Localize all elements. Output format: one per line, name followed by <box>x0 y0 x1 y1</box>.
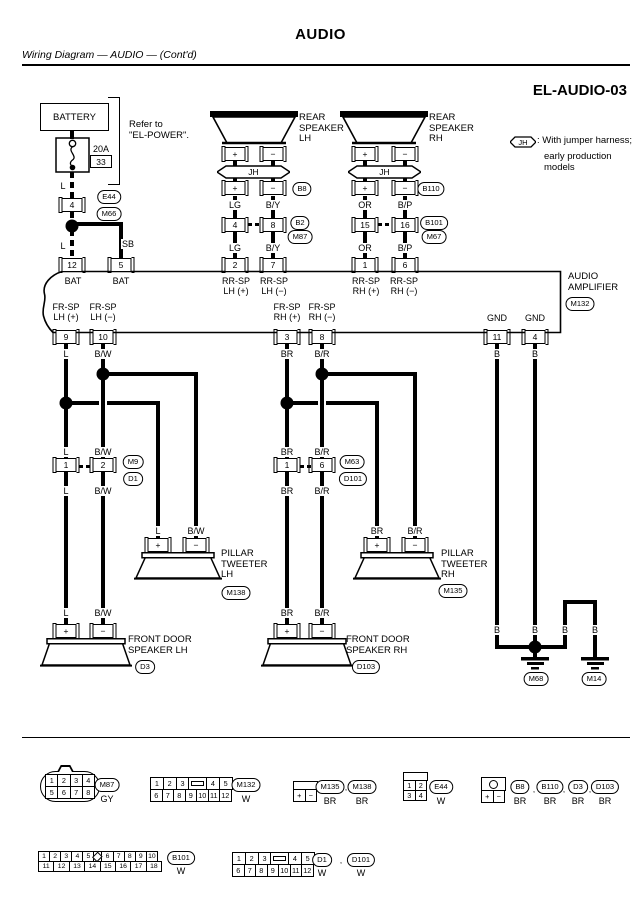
terminal-pin: + <box>225 147 246 161</box>
terminal-pin: 2 <box>225 258 246 272</box>
text-label: BR <box>598 796 613 806</box>
text-label: 20A <box>92 144 110 154</box>
terminal-pin: + <box>56 624 77 638</box>
text-label: B/Y <box>265 243 282 253</box>
wire-segment <box>248 223 252 226</box>
wire-segment <box>101 344 105 458</box>
junction-dot <box>281 397 294 410</box>
pillar-tweeter-rh-symbol <box>353 552 441 580</box>
terminal-pin: 1 <box>56 458 77 472</box>
terminal-pin: 1 <box>355 258 376 272</box>
text-label: BR <box>355 796 370 806</box>
terminal-pin: 9 <box>56 330 77 344</box>
text-label: REAR SPEAKER LH <box>298 113 345 145</box>
e44-row2: 34 <box>403 790 428 801</box>
text-label: BR <box>543 796 558 806</box>
text-label: BR <box>280 447 295 457</box>
header-rule <box>22 64 630 66</box>
text-label: B/R <box>313 447 330 457</box>
terminal-pin: 1 <box>277 458 298 472</box>
section-subtitle: Wiring Diagram — AUDIO — (Cont'd) <box>22 49 197 61</box>
terminal-pin: 11 <box>487 330 508 344</box>
text-label: B/W <box>94 486 113 496</box>
wire-segment <box>563 600 567 645</box>
connector-cell: 15 <box>100 861 116 872</box>
terminal-pin: − <box>263 147 284 161</box>
text-label: W <box>317 868 328 878</box>
jh-label: JH <box>217 165 290 179</box>
connector-notch <box>57 765 74 772</box>
text-label: B <box>493 349 501 359</box>
terminal-pin: − <box>312 624 333 638</box>
text-label: RR-SP RH (−) <box>389 276 419 296</box>
connector-ref: M67 <box>422 230 447 244</box>
connector-ref: B101 <box>167 851 195 865</box>
connector-cell: 12 <box>301 864 314 877</box>
terminal-pin: − <box>93 624 114 638</box>
el-power-bracket <box>108 97 120 185</box>
text-label: B/W <box>94 447 113 457</box>
wire-segment <box>101 372 198 376</box>
text-label: BAT <box>112 276 131 286</box>
text-label: L <box>62 349 69 359</box>
wire-segment <box>378 223 382 226</box>
connector-cell: 16 <box>115 861 131 872</box>
connector-ref: M138 <box>348 780 377 794</box>
terminal-pin: 10 <box>93 330 114 344</box>
fuse-symbol <box>55 137 90 173</box>
text-label: B/R <box>406 526 423 536</box>
front-door-speaker-rh-symbol <box>261 638 353 668</box>
jh-label: JH <box>510 136 536 148</box>
terminal-pin: + <box>148 538 169 552</box>
connector-ref: B110 <box>417 182 444 196</box>
text-label: GND <box>486 313 508 323</box>
connector-ref: M9 <box>123 455 144 469</box>
wire-segment <box>194 372 198 538</box>
jumper-harness-hex-rh: JH <box>348 165 421 179</box>
connector-cell: 14 <box>84 861 100 872</box>
terminal-pin: 6 <box>395 258 416 272</box>
terminal-pin: 5 <box>111 258 132 272</box>
connector-cell: − <box>305 789 318 802</box>
text-label: B <box>531 625 539 635</box>
connector-cell: 11 <box>38 861 54 872</box>
connector-ref: M87 <box>288 230 313 244</box>
wire-segment <box>156 401 160 538</box>
wire-segment <box>255 223 259 226</box>
connector-ref: D101 <box>347 853 375 867</box>
jumper-harness-hex-lh: JH <box>217 165 290 179</box>
legend-connector-e44: 12 34 <box>403 772 428 801</box>
text-label: FRONT DOOR SPEAKER RH <box>345 635 411 656</box>
legend-separator-rule <box>22 737 630 738</box>
wire-segment <box>533 344 537 645</box>
text-label: PILLAR TWEETER RH <box>440 549 488 581</box>
text-label: PILLAR TWEETER LH <box>220 549 268 581</box>
text-label: SB <box>121 239 135 249</box>
connector-ref: E44 <box>429 780 453 794</box>
text-label: L <box>62 608 69 618</box>
text-label: FR-SP LH (+) <box>52 302 81 322</box>
junction-dot <box>316 368 329 381</box>
connector-cell: 12 <box>53 861 69 872</box>
wire-segment <box>413 372 417 538</box>
text-label: RR-SP LH (−) <box>259 276 289 296</box>
front-door-speaker-lh-symbol <box>40 638 132 668</box>
connector-ref: M138 <box>222 586 251 600</box>
text-label: , <box>339 856 343 865</box>
junction-dot <box>66 220 79 233</box>
wire-segment <box>70 230 74 258</box>
text-label: B <box>493 625 501 635</box>
text-label: B <box>591 625 599 635</box>
connector-ref: D103 <box>352 660 380 674</box>
connector-ref: D3 <box>568 780 588 794</box>
connector-ref: B8 <box>510 780 529 794</box>
connector-cell: − <box>493 790 506 803</box>
connector-ref: M135 <box>439 584 468 598</box>
connector-ref: B2 <box>290 216 309 230</box>
text-label: : With jumper harness; <box>536 136 633 147</box>
legend-connector-d1-d101: 12345 6789101112 <box>232 852 315 877</box>
m135-row: +− <box>293 789 318 802</box>
text-label: B/W <box>94 608 113 618</box>
text-label: OR <box>357 200 373 210</box>
wire-segment <box>385 223 389 226</box>
wire-segment <box>563 600 597 604</box>
wire-segment <box>318 372 417 376</box>
connector-ref: D1 <box>123 472 143 486</box>
text-label: FR-SP RH (−) <box>308 302 337 322</box>
text-label: W <box>176 866 187 876</box>
terminal-pin: − <box>263 181 284 195</box>
text-label: B <box>531 349 539 359</box>
page-title: AUDIO <box>0 26 641 43</box>
terminal-pin: 7 <box>263 258 284 272</box>
text-label: W <box>436 796 447 806</box>
ground-symbol <box>581 657 609 671</box>
terminal-pin: + <box>355 181 376 195</box>
text-label: BR <box>513 796 528 806</box>
connector-ref: M132 <box>232 778 261 792</box>
connector-ref: M68 <box>524 672 549 686</box>
text-label: W <box>356 868 367 878</box>
terminal-pin: − <box>395 181 416 195</box>
connector-ref: M14 <box>582 672 607 686</box>
junction-dot <box>529 641 542 654</box>
connector-cell: 13 <box>69 861 85 872</box>
text-label: L <box>62 447 69 457</box>
m87-row2: 5678 <box>45 786 95 799</box>
connector-ref: D1 <box>312 853 332 867</box>
text-label: LG <box>228 200 242 210</box>
connector-cell: 12 <box>219 789 232 802</box>
legend-connector-b101: 12345678910 1112131415161718 <box>38 851 162 872</box>
wire-segment <box>107 401 160 405</box>
terminal-pin: 2 <box>93 458 114 472</box>
pillar-tweeter-lh-symbol <box>134 552 222 580</box>
terminal-pin: 3 <box>277 330 298 344</box>
connector-oval-shell: 1234 5678 <box>40 771 100 802</box>
connector-ref: D101 <box>339 472 367 486</box>
m132-row2: 6789101112 <box>150 789 233 802</box>
terminal-pin: 8 <box>263 218 284 232</box>
terminal-pin: + <box>225 181 246 195</box>
text-label: BAT <box>64 276 83 286</box>
connector-ref: M87 <box>95 778 120 792</box>
ground-symbol <box>521 657 549 671</box>
legend-connector-m132: 12345 6789101112 <box>150 777 233 802</box>
text-label: LG <box>228 243 242 253</box>
legend-connector-m87: 1234 5678 <box>40 771 100 802</box>
text-label: RR-SP RH (+) <box>351 276 381 296</box>
guide-hole-cell <box>481 777 506 791</box>
wire-segment <box>375 401 379 538</box>
wire-segment <box>495 344 499 649</box>
terminal-pin: 4 <box>525 330 546 344</box>
text-label: BR <box>280 486 295 496</box>
battery-box: BATTERY <box>40 103 109 131</box>
connector-ref: M66 <box>97 207 122 221</box>
terminal-pin: − <box>395 147 416 161</box>
connector-ref: M135 <box>316 780 345 794</box>
jh-note-hex-icon: JH <box>510 136 536 148</box>
connector-ref: D103 <box>591 780 619 794</box>
d1-row2: 6789101112 <box>232 864 315 877</box>
connector-ref: B8 <box>292 182 311 196</box>
text-label: BR <box>323 796 338 806</box>
terminal-pin: − <box>405 538 426 552</box>
text-label: BR <box>370 526 385 536</box>
text-label: BR <box>280 349 295 359</box>
connector-ref: B101 <box>420 216 448 230</box>
text-label: B/R <box>313 608 330 618</box>
wire-segment <box>320 344 324 458</box>
text-label: AUDIO AMPLIFIER <box>567 272 619 293</box>
terminal-pin: 15 <box>355 218 376 232</box>
terminal-pin: − <box>186 538 207 552</box>
terminal-pin: 16 <box>395 218 416 232</box>
terminal-pin: 12 <box>62 258 83 272</box>
terminal-pin: + <box>355 147 376 161</box>
text-label: W <box>241 794 252 804</box>
terminal-pin: + <box>277 624 298 638</box>
text-label: BR <box>280 608 295 618</box>
text-label: OR <box>357 243 373 253</box>
junction-dot <box>97 368 110 381</box>
text-label: B/Y <box>265 200 282 210</box>
legend-connector-b8-group: +− <box>481 777 506 803</box>
connector-cell: 17 <box>130 861 146 872</box>
wire-segment <box>70 130 74 139</box>
b8-row: +− <box>481 790 506 803</box>
rear-speaker-lh-symbol <box>209 110 299 148</box>
connector-ref: M132 <box>566 297 595 311</box>
text-label: L <box>59 181 66 191</box>
diagram-code: EL-AUDIO-03 <box>533 82 627 99</box>
terminal-pin: 8 <box>312 330 333 344</box>
text-label: GND <box>524 313 546 323</box>
text-label: B/R <box>313 486 330 496</box>
text-label: FR-SP RH (+) <box>273 302 302 322</box>
wiring-diagram-page: AUDIO Wiring Diagram — AUDIO — (Cont'd) … <box>0 0 641 899</box>
connector-cell: 18 <box>146 861 162 872</box>
connector-cell: 8 <box>82 786 95 799</box>
connector-ref: D3 <box>135 660 155 674</box>
connector-ref: M63 <box>340 455 365 469</box>
text-label: FRONT DOOR SPEAKER LH <box>127 635 193 656</box>
wire-segment <box>300 465 304 468</box>
text-label: L <box>59 241 66 251</box>
text-label: L <box>62 486 69 496</box>
wire-segment <box>70 172 74 198</box>
connector-ref: E44 <box>97 190 121 204</box>
text-label: B <box>561 625 569 635</box>
text-label: BR <box>571 796 586 806</box>
text-label: B/W <box>94 349 113 359</box>
terminal-pin: 4 <box>225 218 246 232</box>
terminal-pin: 6 <box>312 458 333 472</box>
text-label: B/R <box>313 349 330 359</box>
text-label: Refer to "EL-POWER". <box>128 120 190 141</box>
junction-dot <box>60 397 73 410</box>
terminal-pin: 33 <box>90 155 112 168</box>
text-label: RR-SP LH (+) <box>221 276 251 296</box>
text-label: B/W <box>187 526 206 536</box>
text-label: early production models <box>543 152 641 173</box>
text-label: FR-SP LH (−) <box>89 302 118 322</box>
legend-connector-m135-m138: +− <box>293 781 318 802</box>
text-label: B/P <box>397 200 414 210</box>
connector-ref: B110 <box>536 780 563 794</box>
wire-segment <box>326 401 379 405</box>
text-label: REAR SPEAKER RH <box>428 113 475 145</box>
wire-segment <box>79 465 83 468</box>
b101-row2: 1112131415161718 <box>38 861 162 872</box>
text-label: GY <box>99 794 114 804</box>
terminal-pin: 4 <box>62 198 83 212</box>
text-label: L <box>154 526 161 536</box>
text-label: B/P <box>397 243 414 253</box>
terminal-pin: + <box>367 538 388 552</box>
rear-speaker-rh-symbol <box>339 110 429 148</box>
connector-cell: 4 <box>415 790 428 801</box>
jh-label: JH <box>348 165 421 179</box>
